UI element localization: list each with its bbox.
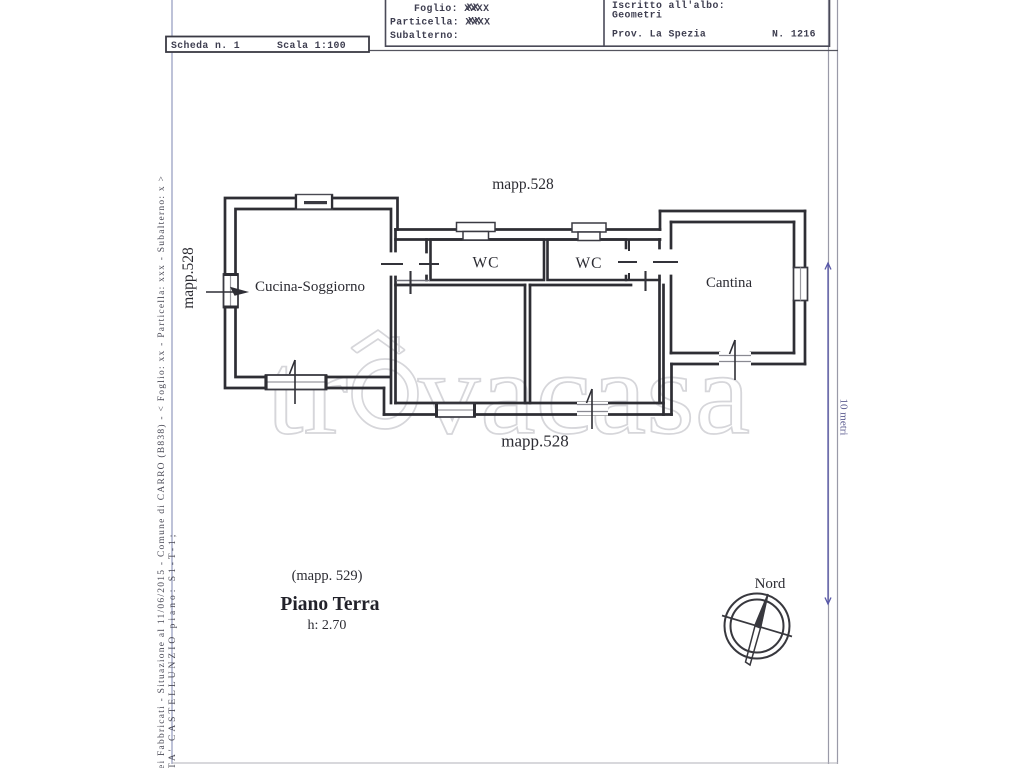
svg-text:vacasa: vacasa [418, 328, 750, 459]
svg-text:Scala 1:100: Scala 1:100 [277, 40, 346, 51]
svg-text:XX: XX [468, 16, 481, 27]
svg-text:h: 2.70: h: 2.70 [308, 618, 347, 633]
svg-text:Cantina: Cantina [706, 275, 752, 291]
svg-text:N. 1216: N. 1216 [772, 29, 816, 40]
svg-text:mapp.528: mapp.528 [492, 176, 554, 193]
svg-text:mapp.528: mapp.528 [180, 247, 197, 309]
svg-text:Nord: Nord [755, 576, 786, 592]
svg-text:WC: WC [473, 255, 500, 272]
svg-text:Piano Terra: Piano Terra [280, 594, 379, 615]
svg-text:10 metri: 10 metri [838, 399, 850, 436]
svg-text:Cucina-Soggiorno: Cucina-Soggiorno [255, 279, 365, 295]
svg-text:Scheda n. 1: Scheda n. 1 [171, 40, 240, 51]
svg-text:Prov. La Spezia: Prov. La Spezia [612, 29, 706, 40]
svg-text:Geometri: Geometri [612, 10, 662, 21]
svg-text:mapp.528: mapp.528 [501, 432, 569, 451]
svg-text:(mapp. 529): (mapp. 529) [292, 568, 363, 584]
svg-text:ei Fabbricati - Situazione al: ei Fabbricati - Situazione al 11/06/2015… [156, 175, 167, 768]
svg-text:XX: XX [467, 2, 480, 13]
svg-text:WC: WC [576, 255, 603, 272]
svg-text:Subalterno:: Subalterno: [390, 30, 459, 41]
svg-text:TA' CASTELLUNZIO piano: S1-T-1: TA' CASTELLUNZIO piano: S1-T-1; [168, 532, 178, 768]
svg-text:tr: tr [266, 328, 348, 459]
